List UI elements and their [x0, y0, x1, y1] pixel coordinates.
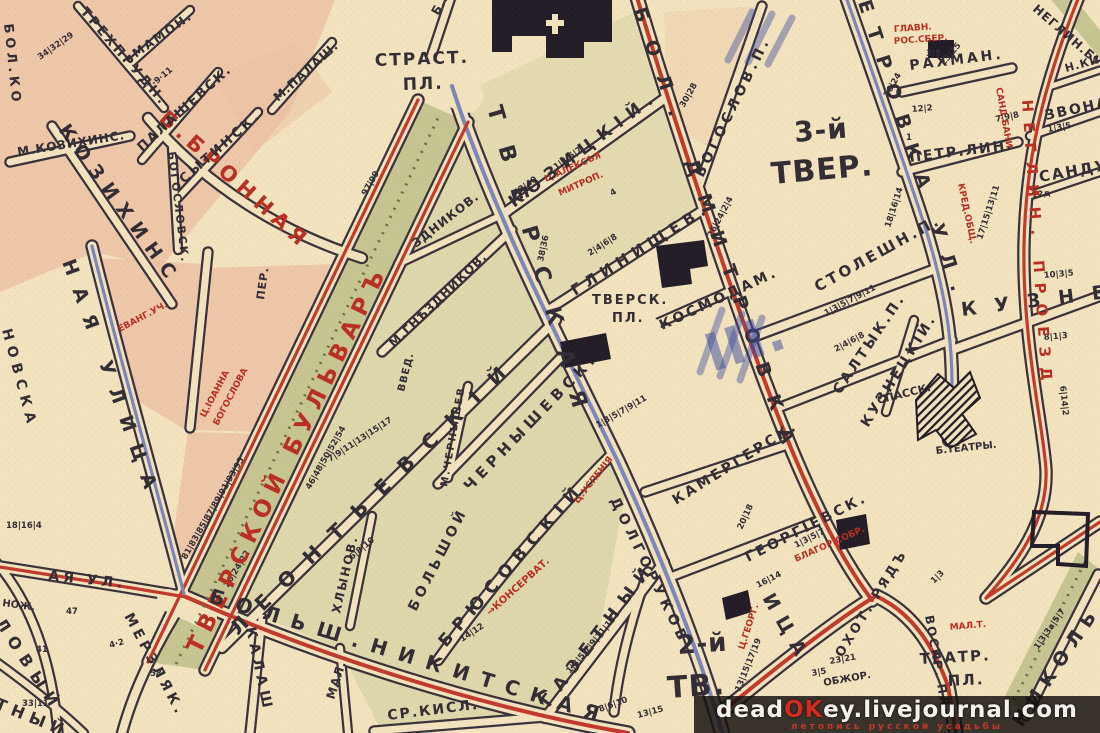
label-n41: 47	[66, 607, 78, 617]
watermark-part2: OK	[784, 697, 823, 723]
map-stage: 42|401|3|5|738|3641|3|5|7|9|1130|2826|24…	[0, 0, 1100, 733]
watermark: deadOKey.livejournal.com летопись русско…	[694, 696, 1100, 733]
label-district-2-tver-num: 2-й	[676, 628, 728, 661]
label-n28: 12|2	[911, 103, 933, 115]
label-teatr-pl-2: ПЛ.	[947, 670, 985, 690]
label-strastnaya-pl-1: СТРАСТ.	[374, 48, 469, 71]
label-tverskaya-pl-2: ПЛ.	[612, 311, 645, 326]
label-n46: 18|16|4	[6, 521, 42, 531]
label-n43: 41	[36, 645, 48, 655]
moscow-vintage-map: 42|401|3|5|738|3641|3|5|7|9|1130|2826|24…	[0, 0, 1100, 733]
label-tverskaya-pl-1: ТВЕРСК.	[592, 293, 668, 308]
watermark-part1: dead	[716, 697, 784, 723]
watermark-text: deadOKey.livejournal.com	[694, 697, 1100, 723]
label-strastnaya-pl-2: ПЛ.	[402, 74, 443, 95]
watermark-subtitle: летопись русской усадьбы	[694, 723, 1100, 732]
label-district-3-tver-num: 3-й	[793, 111, 849, 149]
watermark-part3: ey.livejournal.com	[823, 697, 1078, 723]
